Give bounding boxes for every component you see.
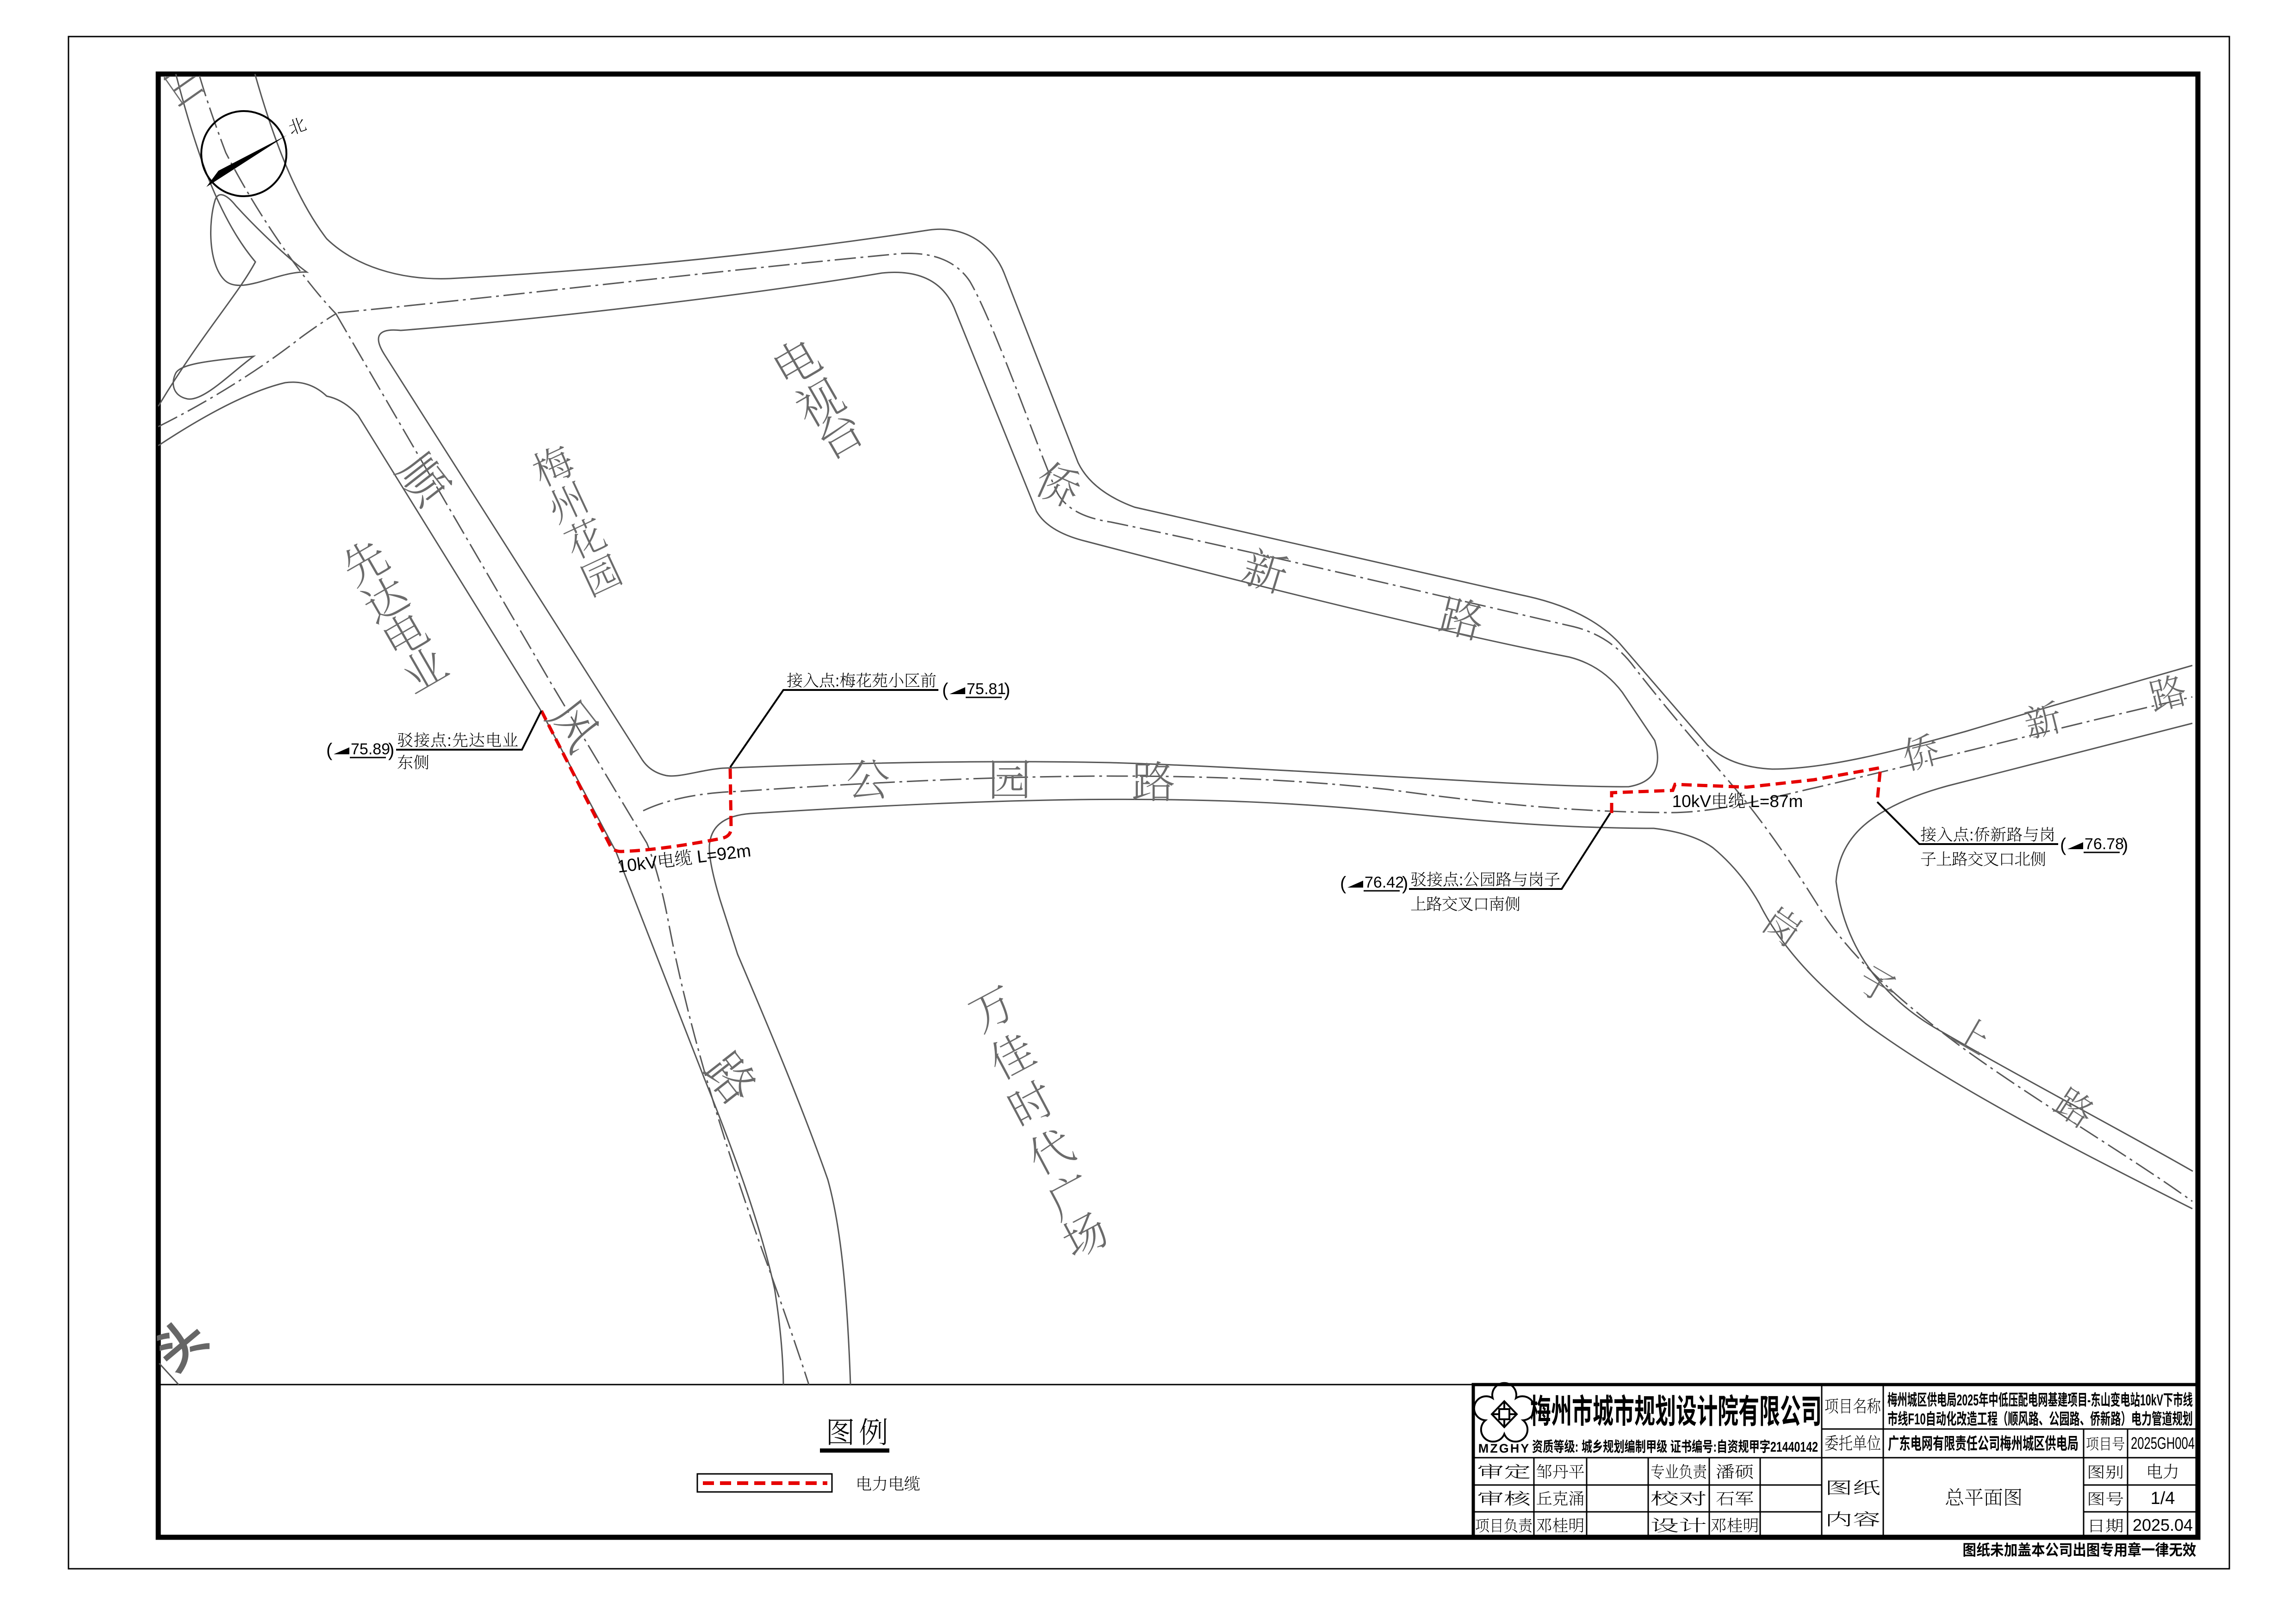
svg-text:项目名称: 项目名称 (1824, 1392, 1881, 1417)
svg-text:76.78: 76.78 (2085, 835, 2124, 853)
svg-text:图别: 图别 (2087, 1460, 2124, 1482)
svg-text:专业负责: 专业负责 (1651, 1460, 1707, 1483)
svg-text:): ) (1004, 680, 1010, 700)
svg-text:项目负责: 项目负责 (1475, 1513, 1533, 1536)
svg-text:广东电网有限责任公司梅州城区供电局: 广东电网有限责任公司梅州城区供电局 (1888, 1430, 2079, 1454)
svg-text:2025GH004: 2025GH004 (2131, 1434, 2195, 1453)
svg-text:1/4: 1/4 (2151, 1489, 2175, 1508)
svg-text:上路交叉口南侧: 上路交叉口南侧 (1410, 892, 1520, 915)
svg-text:市线F10自动化改造工程（顺风路、公园路、侨新路）电力管道规: 市线F10自动化改造工程（顺风路、公园路、侨新路）电力管道规划 (1887, 1406, 2193, 1429)
svg-text:): ) (1402, 873, 1408, 894)
svg-text:潘硕: 潘硕 (1716, 1460, 1754, 1483)
svg-text:例: 例 (859, 1409, 888, 1452)
svg-text:丘克涌: 丘克涌 (1536, 1486, 1584, 1510)
svg-text:图号: 图号 (2087, 1487, 2124, 1509)
svg-text:驳接点:先达电业: 驳接点:先达电业 (397, 728, 518, 751)
svg-text:图纸: 图纸 (1825, 1475, 1880, 1499)
svg-text:子上路交叉口北侧: 子上路交叉口北侧 (1920, 847, 2046, 870)
svg-text:10kV电缆 L=87m: 10kV电缆 L=87m (1672, 787, 1803, 812)
svg-text:邓桂明: 邓桂明 (1536, 1513, 1584, 1536)
svg-text:(: ( (2060, 835, 2066, 855)
svg-text:委托单位: 委托单位 (1824, 1429, 1881, 1454)
svg-text:图纸未加盖本公司出图专用章一律无效: 图纸未加盖本公司出图专用章一律无效 (1963, 1538, 2197, 1560)
svg-text:总平面图: 总平面图 (1945, 1483, 2023, 1510)
svg-text:资质等级: 城乡规划编制甲级 证书编号:自资规甲字21440: 资质等级: 城乡规划编制甲级 证书编号:自资规甲字21440142 (1532, 1435, 1818, 1456)
svg-text:): ) (2122, 835, 2128, 855)
svg-text:内容: 内容 (1825, 1507, 1880, 1530)
svg-text:图: 图 (825, 1409, 855, 1452)
svg-text:接入点:梅花苑小区前: 接入点:梅花苑小区前 (787, 668, 937, 691)
svg-text:日期: 日期 (2087, 1514, 2124, 1536)
svg-text:审定: 审定 (1477, 1460, 1531, 1483)
svg-text:项目号: 项目号 (2086, 1432, 2125, 1454)
svg-text:电力电缆: 电力电缆 (856, 1472, 920, 1495)
svg-text:(: ( (326, 740, 333, 760)
svg-text:园: 园 (987, 746, 1031, 808)
svg-text:设计: 设计 (1651, 1513, 1707, 1536)
svg-text:路: 路 (1131, 748, 1175, 811)
svg-text:校对: 校对 (1651, 1486, 1707, 1510)
svg-text:石军: 石军 (1716, 1486, 1754, 1510)
svg-text:MZGHY: MZGHY (1478, 1441, 1531, 1455)
svg-text:邹丹平: 邹丹平 (1536, 1460, 1584, 1483)
svg-text:75.89: 75.89 (351, 740, 390, 758)
svg-text:接入点:侨新路与岗: 接入点:侨新路与岗 (1920, 822, 2055, 845)
svg-text:驳接点:公园路与岗子: 驳接点:公园路与岗子 (1410, 867, 1560, 890)
svg-text:): ) (388, 740, 394, 760)
svg-text:75.81: 75.81 (967, 680, 1006, 698)
svg-text:(: ( (942, 680, 949, 700)
svg-text:邓桂明: 邓桂明 (1710, 1513, 1759, 1536)
svg-text:(: ( (1340, 873, 1347, 894)
svg-text:审核: 审核 (1477, 1486, 1531, 1510)
svg-text:2025.04: 2025.04 (2133, 1516, 2193, 1535)
svg-text:76.42: 76.42 (1365, 874, 1404, 891)
svg-text:东侧: 东侧 (397, 750, 429, 773)
svg-text:梅州市城市规划设计院有限公司: 梅州市城市规划设计院有限公司 (1530, 1384, 1822, 1433)
svg-text:电力: 电力 (2146, 1459, 2179, 1483)
svg-text:公: 公 (846, 746, 890, 808)
